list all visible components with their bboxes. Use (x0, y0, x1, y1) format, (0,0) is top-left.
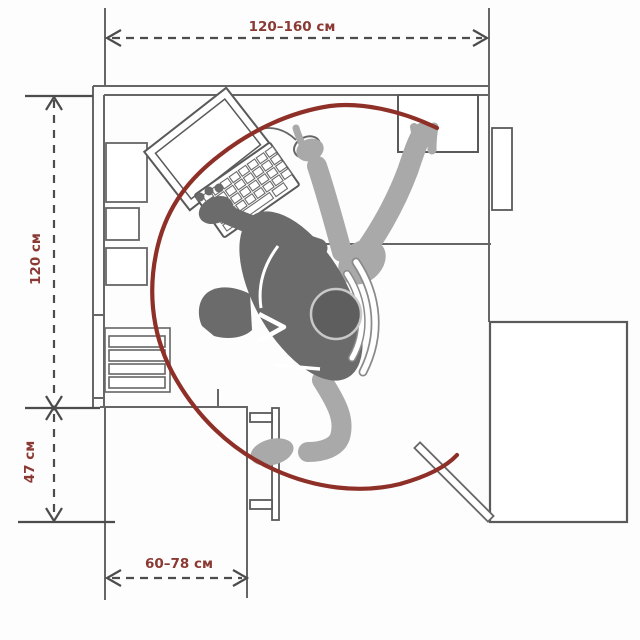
person-left-hand (199, 287, 252, 338)
dimension-label-bottom: 60–78 см (145, 556, 213, 572)
dimension-label-left-lower: 47 см (22, 441, 38, 484)
cabinet (490, 322, 627, 522)
dimension-label-top: 120–160 см (249, 19, 336, 35)
shelf-box (106, 208, 139, 240)
left-shelf-group (106, 143, 147, 285)
person-finger (432, 127, 434, 150)
door-leaf (414, 442, 493, 521)
dimension-label-left-upper: 120 см (28, 233, 44, 285)
person-leg (308, 380, 342, 452)
person-head (311, 289, 361, 339)
drawer-slat (109, 377, 165, 388)
person-finger (414, 127, 418, 148)
drawer-slat (109, 350, 165, 361)
radiator-tab (250, 500, 272, 509)
person-finger (205, 187, 214, 196)
shelf-box (106, 143, 147, 202)
person-foot (247, 434, 296, 471)
side-shelf (492, 128, 512, 210)
person-finger (215, 184, 224, 193)
diagram-canvas: 120–160 см 120 см 47 см 60–78 см (0, 0, 640, 640)
drawer-slat (109, 364, 165, 374)
radiator-tab (250, 413, 272, 422)
person-finger (196, 193, 205, 202)
ergonomics-diagram: 120–160 см 120 см 47 см 60–78 см (0, 0, 640, 640)
shelf-box (106, 248, 147, 285)
